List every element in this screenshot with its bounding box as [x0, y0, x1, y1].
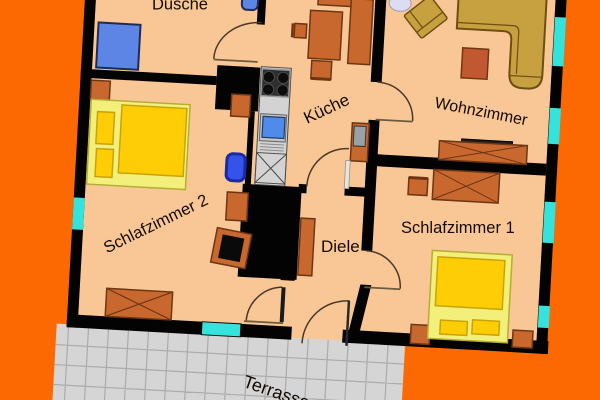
svg-text:Dusche: Dusche	[152, 0, 208, 14]
svg-text:Schlafzimmer 1: Schlafzimmer 1	[401, 219, 515, 237]
svg-text:Diele: Diele	[321, 237, 360, 256]
